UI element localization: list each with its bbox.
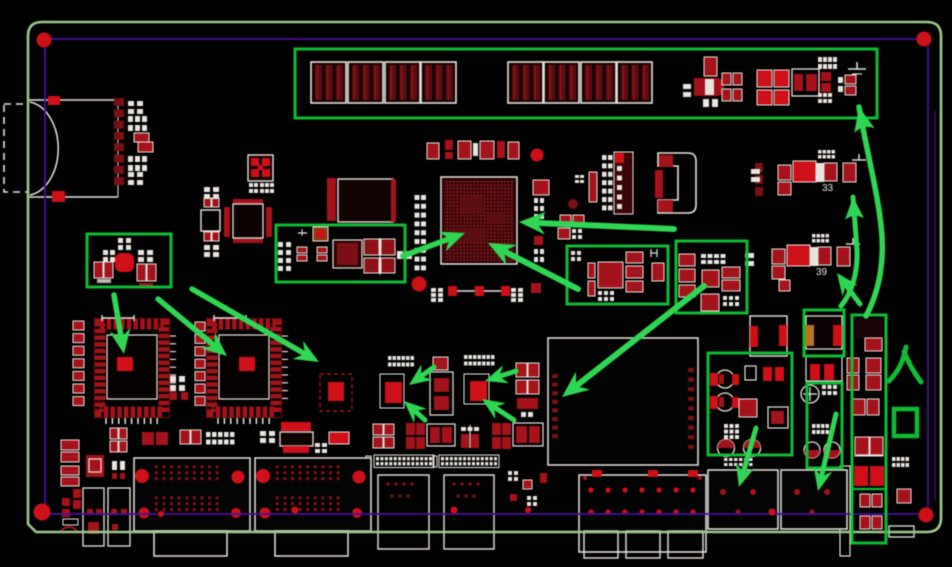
svg-text:33: 33	[822, 183, 834, 194]
svg-text:39: 39	[816, 267, 828, 278]
